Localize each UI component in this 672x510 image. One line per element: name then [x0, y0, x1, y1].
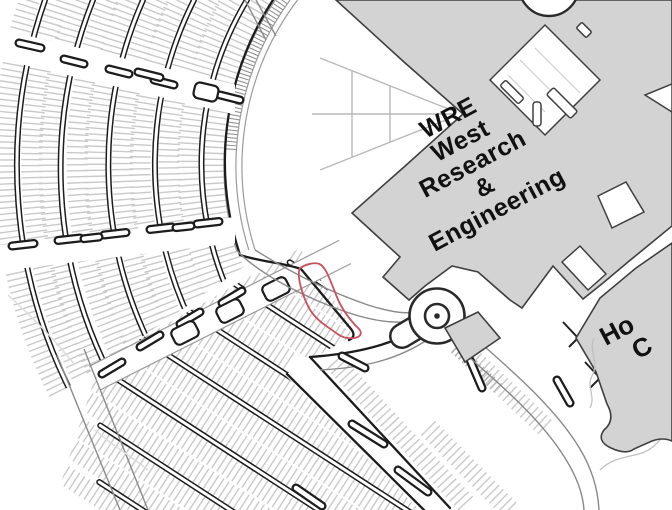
- campus-map-canvas: WRE West Research & Engineering Ho C: [0, 0, 672, 510]
- campus-map: WRE West Research & Engineering Ho C: [0, 0, 672, 510]
- roundabout-center-dot: [434, 313, 440, 319]
